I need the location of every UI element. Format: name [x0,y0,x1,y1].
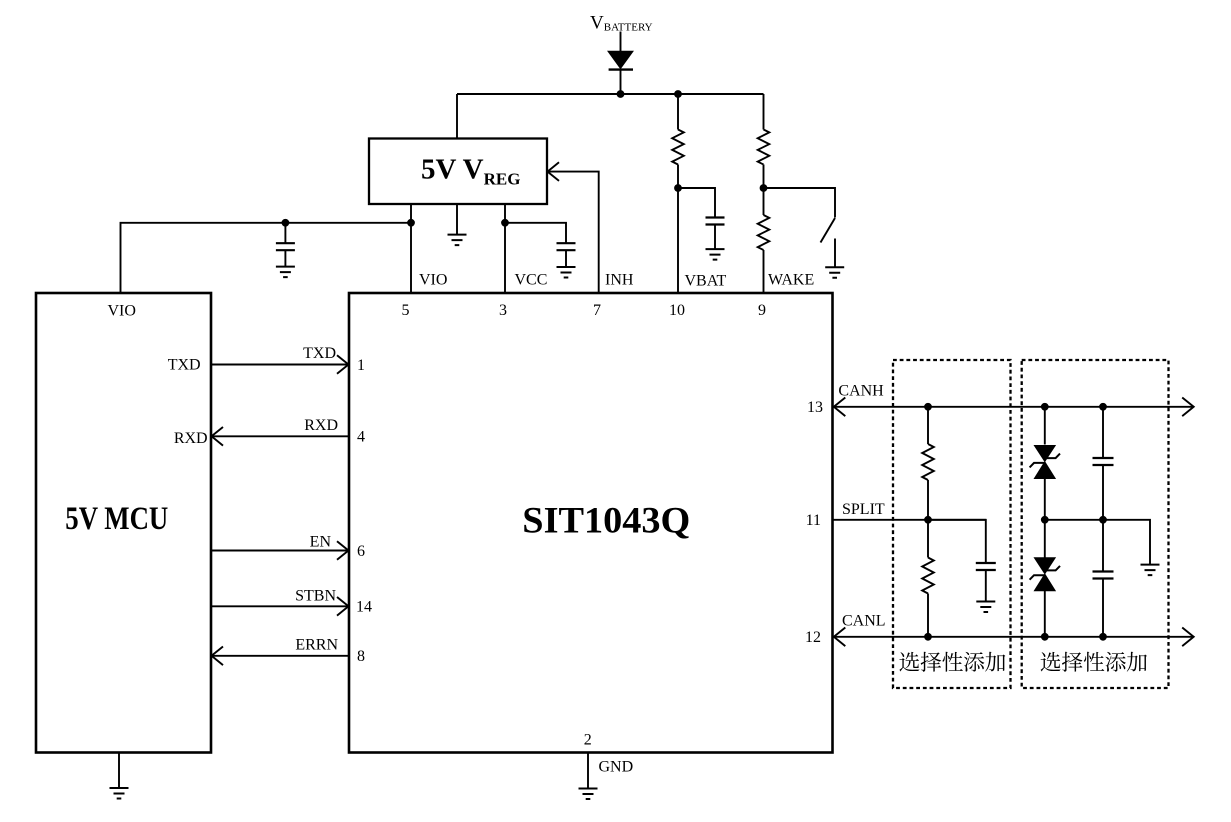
svg-text:5V MCU: 5V MCU [65,501,168,537]
svg-text:GND: GND [599,759,634,776]
svg-text:5: 5 [402,302,410,319]
svg-text:10: 10 [669,302,685,319]
svg-text:CANL: CANL [842,613,886,630]
svg-text:5V VREG: 5V VREG [421,154,520,189]
svg-text:STBN: STBN [295,588,336,605]
svg-text:VIO: VIO [108,303,136,320]
svg-text:TXD: TXD [168,357,201,374]
svg-text:VBAT: VBAT [685,273,727,290]
svg-text:WAKE: WAKE [768,272,814,289]
svg-text:RXD: RXD [304,417,338,434]
svg-text:12: 12 [805,629,821,646]
svg-text:4: 4 [357,429,365,446]
svg-text:14: 14 [356,599,372,616]
svg-text:VBATTERY: VBATTERY [590,13,653,34]
svg-text:3: 3 [499,302,507,319]
svg-text:SPLIT: SPLIT [842,501,885,518]
svg-text:9: 9 [758,302,766,319]
svg-text:RXD: RXD [174,430,208,447]
svg-text:VCC: VCC [515,272,548,289]
svg-text:11: 11 [806,512,821,529]
svg-text:VIO: VIO [419,272,447,289]
svg-text:6: 6 [357,543,365,560]
svg-text:EN: EN [310,534,332,551]
svg-text:8: 8 [357,648,365,665]
svg-text:TXD: TXD [303,345,336,362]
svg-text:1: 1 [357,357,365,374]
svg-text:ERRN: ERRN [295,637,338,654]
svg-text:13: 13 [807,399,823,416]
svg-text:2: 2 [584,732,592,749]
svg-text:INH: INH [605,272,634,289]
svg-text:SIT1043Q: SIT1043Q [522,501,690,542]
svg-text:7: 7 [593,302,601,319]
svg-text:CANH: CANH [838,383,884,400]
